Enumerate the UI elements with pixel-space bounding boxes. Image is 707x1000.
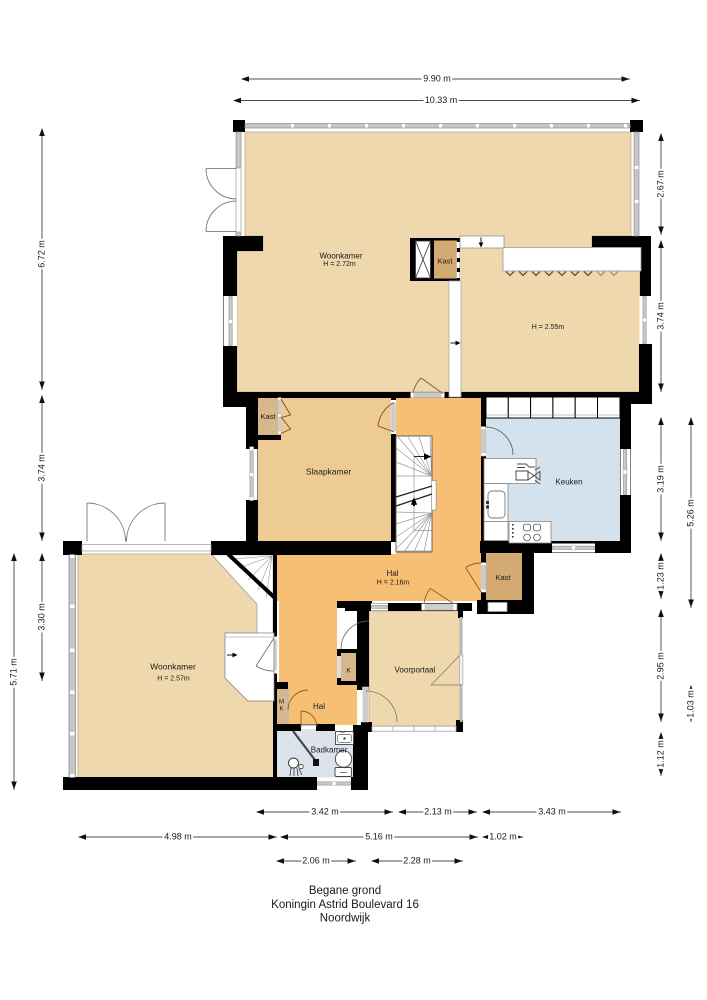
svg-text:Hal: Hal (386, 569, 398, 578)
svg-text:Kast: Kast (437, 257, 453, 266)
svg-text:Kast: Kast (495, 573, 511, 582)
svg-text:Koningin Astrid Boulevard 16: Koningin Astrid Boulevard 16 (271, 899, 419, 911)
svg-text:6.72 m: 6.72 m (37, 240, 47, 268)
svg-text:K: K (346, 668, 351, 675)
svg-text:1.12 m: 1.12 m (656, 740, 666, 768)
svg-text:Kast: Kast (260, 412, 276, 421)
svg-text:3.74 m: 3.74 m (656, 302, 666, 330)
svg-text:Badkamer: Badkamer (311, 746, 348, 755)
svg-text:2.67 m: 2.67 m (656, 170, 666, 198)
svg-text:H = 2.55m: H = 2.55m (532, 324, 565, 331)
svg-text:5.71 m: 5.71 m (9, 658, 19, 686)
svg-text:H = 2.57m: H = 2.57m (157, 676, 190, 683)
svg-text:2.95 m: 2.95 m (656, 652, 666, 680)
svg-text:M: M (279, 700, 284, 706)
svg-text:H = 2.16m: H = 2.16m (377, 580, 410, 587)
svg-text:3.74 m: 3.74 m (37, 454, 47, 482)
svg-text:3.43 m: 3.43 m (538, 807, 566, 817)
svg-text:Voorportaal: Voorportaal (395, 666, 436, 675)
svg-text:10.33 m: 10.33 m (425, 95, 458, 105)
svg-text:Hal: Hal (313, 702, 325, 711)
svg-text:5.26 m: 5.26 m (686, 499, 696, 527)
svg-text:2.06 m: 2.06 m (302, 856, 330, 866)
svg-text:1.02 m: 1.02 m (489, 832, 517, 842)
svg-text:3.30 m: 3.30 m (37, 603, 47, 631)
svg-text:5.16 m: 5.16 m (365, 832, 393, 842)
svg-text:Woonkamer: Woonkamer (150, 662, 196, 672)
svg-text:Noordwijk: Noordwijk (320, 913, 371, 925)
svg-text:3.42 m: 3.42 m (311, 807, 339, 817)
svg-text:Slaapkamer: Slaapkamer (306, 467, 352, 477)
svg-text:Woonkamer: Woonkamer (320, 252, 363, 261)
svg-text:Keuken: Keuken (555, 478, 582, 487)
svg-text:2.28 m: 2.28 m (403, 856, 431, 866)
svg-text:1.03 m: 1.03 m (686, 690, 696, 718)
svg-text:3.19 m: 3.19 m (656, 465, 666, 493)
svg-text:H = 2.72m: H = 2.72m (323, 261, 356, 268)
svg-text:4.98 m: 4.98 m (164, 832, 192, 842)
svg-text:Begane grond: Begane grond (309, 885, 381, 897)
svg-text:2.13 m: 2.13 m (424, 807, 452, 817)
svg-text:9.90 m: 9.90 m (423, 74, 451, 84)
svg-text:1.23 m: 1.23 m (656, 562, 666, 590)
svg-text:K: K (279, 707, 283, 713)
